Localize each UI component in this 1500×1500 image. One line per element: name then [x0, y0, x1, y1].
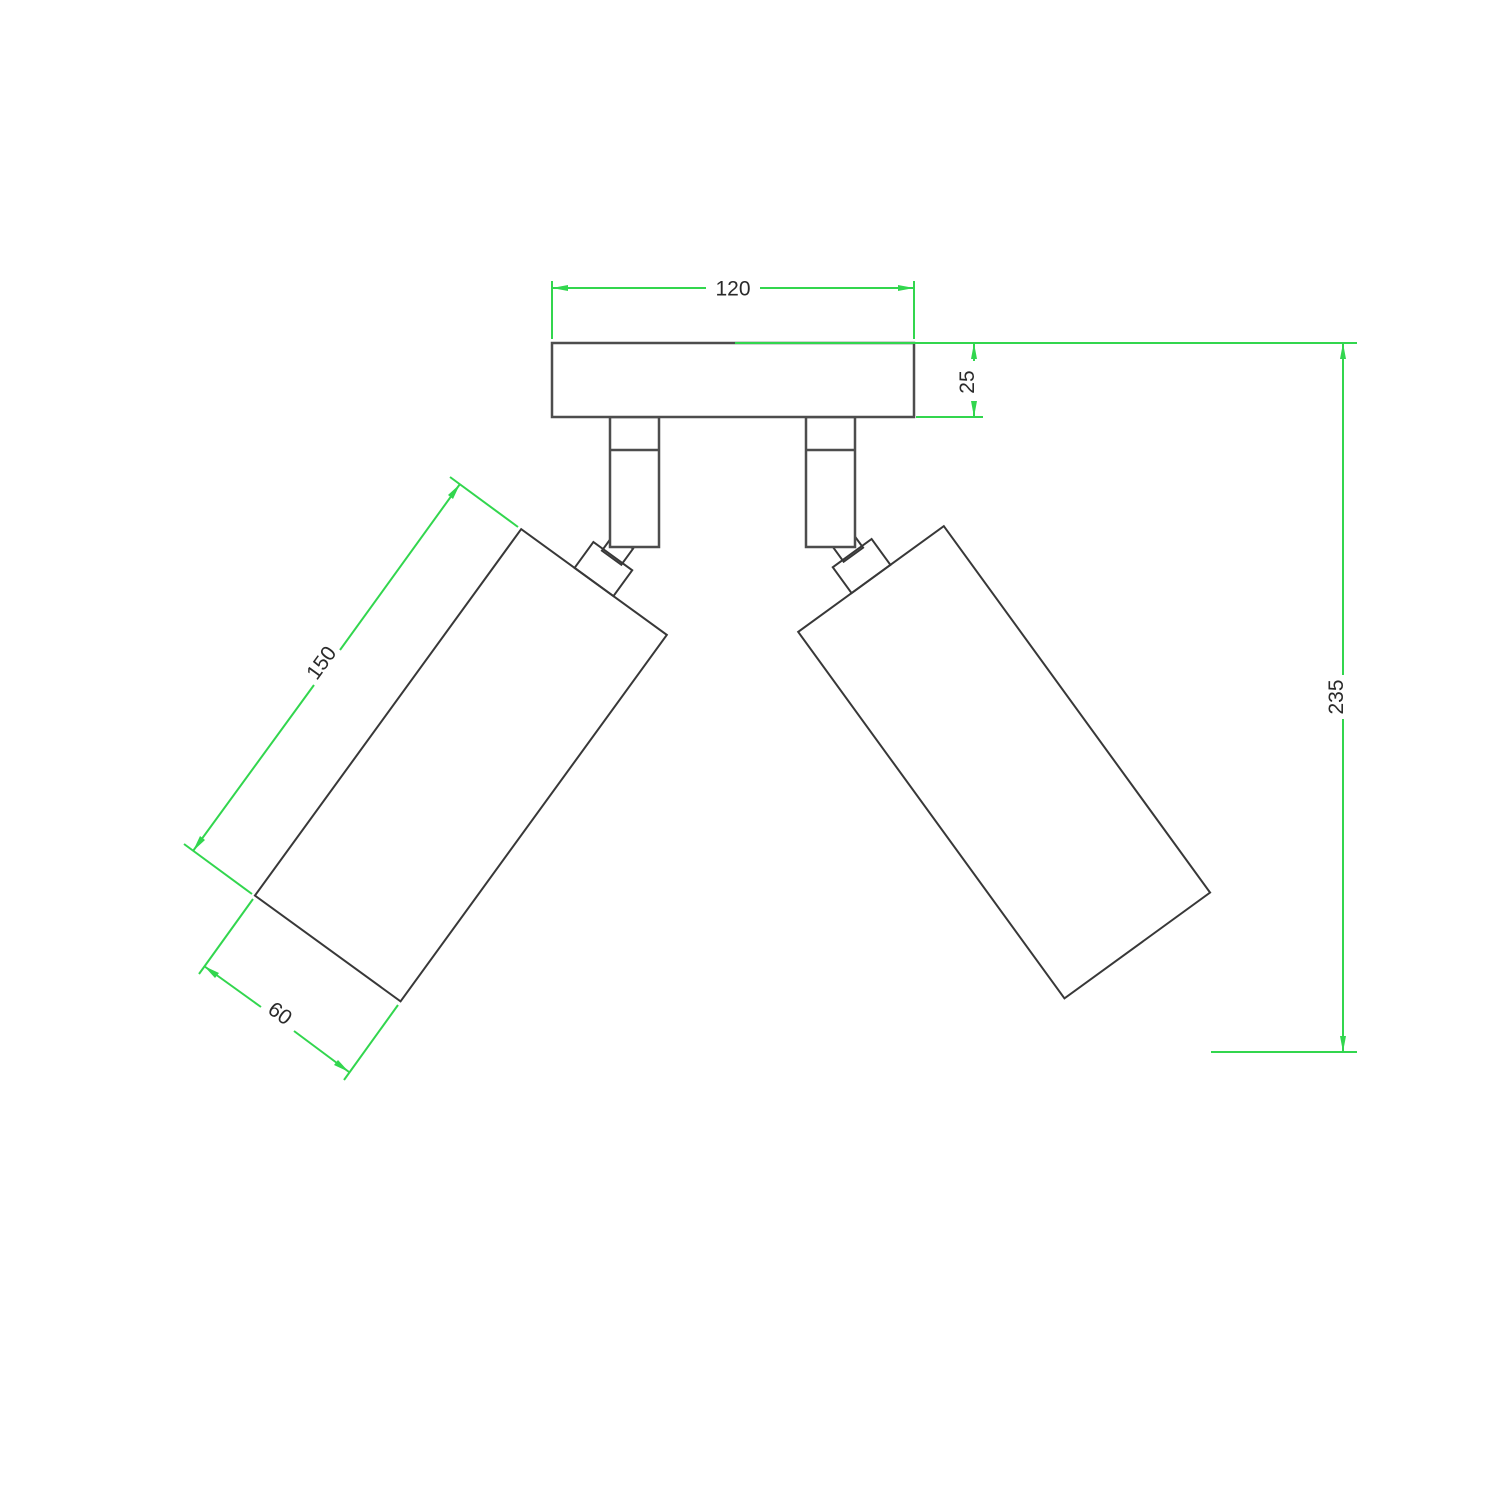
dimension-label-60: 60: [264, 998, 296, 1030]
extension-line: [184, 844, 252, 894]
left-stem: [610, 417, 659, 547]
dimension-canopy-thickness: 25: [916, 343, 983, 417]
dimension-canopy-width: 120: [552, 277, 914, 339]
left-spotlight-body: [255, 529, 667, 1001]
arrowhead: [1340, 1036, 1346, 1052]
arrowhead: [552, 285, 568, 291]
dimension-label-25: 25: [956, 370, 979, 393]
drawing-canvas: 120 25 235 150 60: [0, 0, 1500, 1500]
dimension-line: [193, 685, 314, 851]
dimension-label-235: 235: [1325, 679, 1348, 714]
arrowhead: [898, 285, 914, 291]
arrowhead: [971, 401, 977, 417]
right-spotlight-body: [798, 526, 1210, 998]
arrowhead: [1340, 343, 1346, 359]
extension-line: [199, 899, 253, 974]
arrowhead: [971, 343, 977, 359]
mounting-plate: [552, 343, 914, 417]
dimension-line: [340, 484, 460, 650]
right-stem: [806, 417, 855, 547]
technical-drawing: 120 25 235 150 60: [0, 0, 1500, 1500]
extension-line: [344, 1005, 398, 1080]
dimension-label-120: 120: [715, 277, 750, 300]
dimension-label-150: 150: [302, 642, 341, 684]
dimension-spot-length: 150: [184, 477, 518, 894]
